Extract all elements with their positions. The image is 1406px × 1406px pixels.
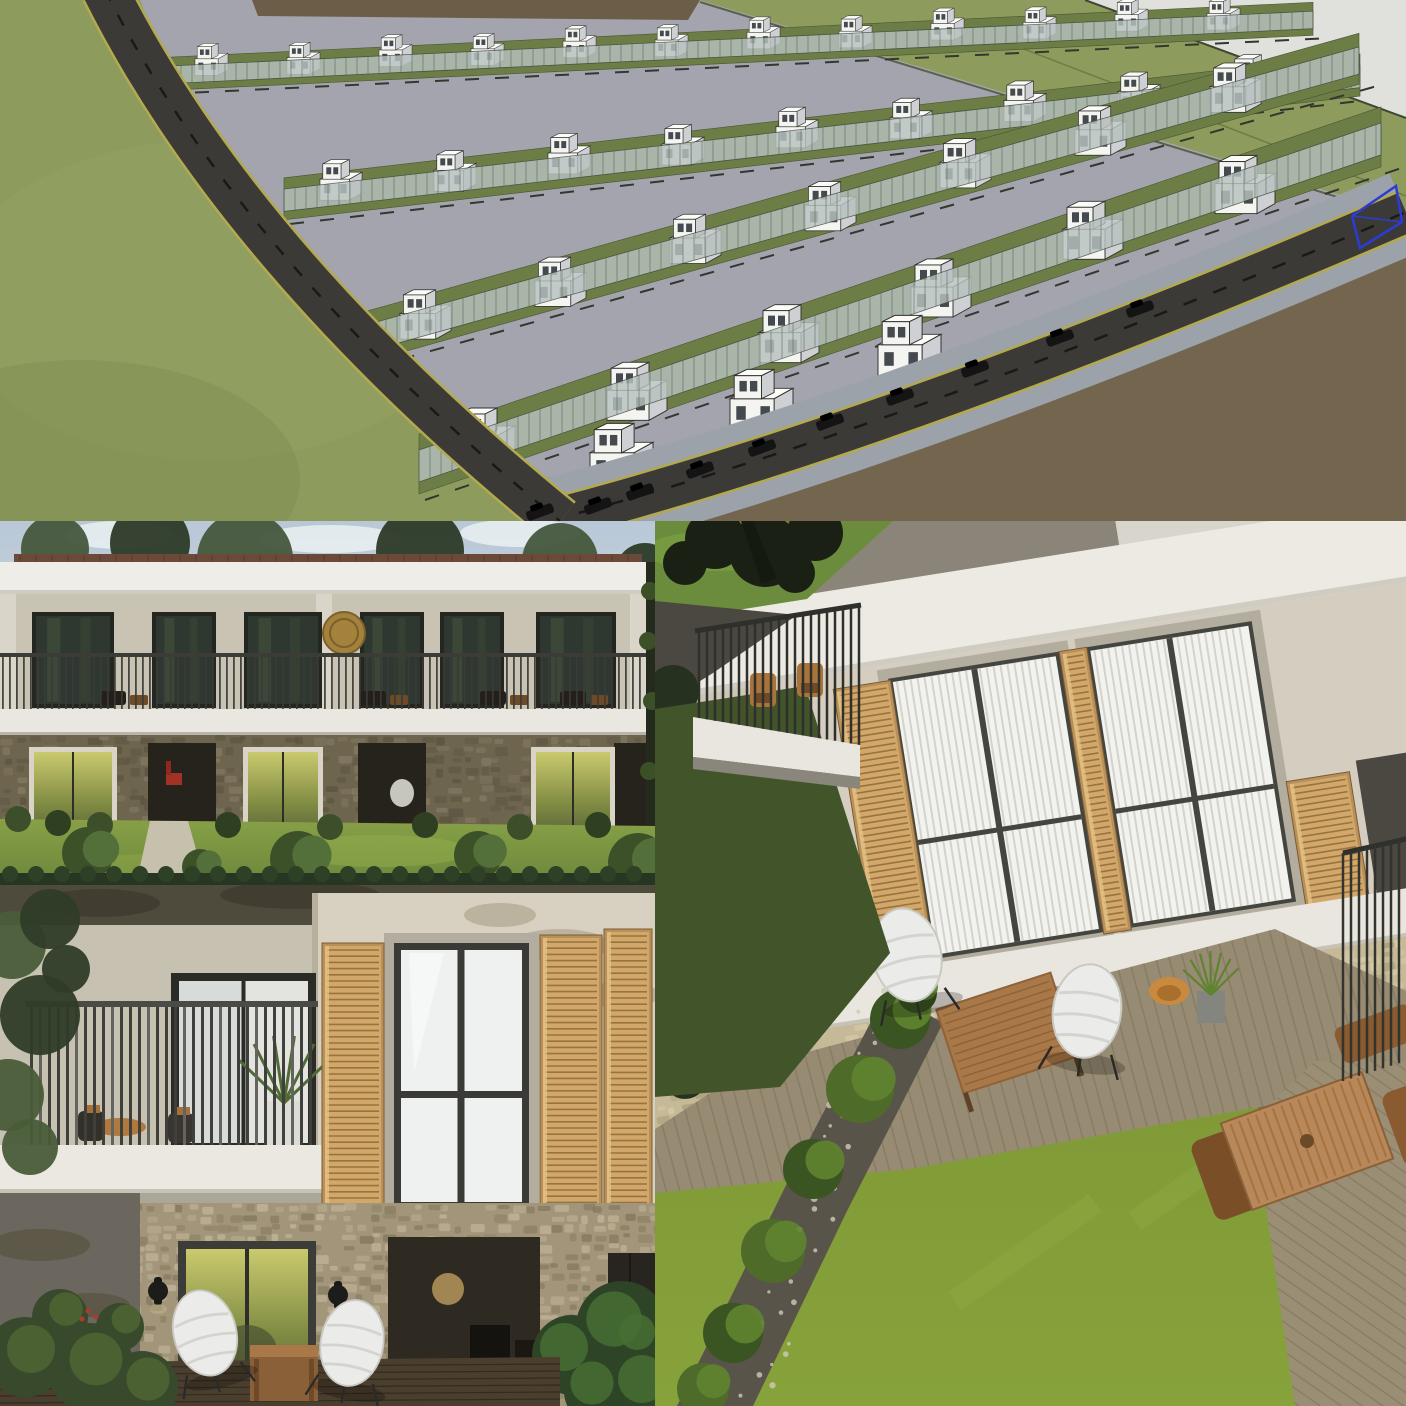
tree-silhouette — [663, 541, 707, 585]
balcony-slab — [0, 709, 655, 735]
townhouse-render-panel — [0, 521, 655, 885]
plant-pot — [1197, 991, 1225, 1023]
render-collage — [0, 0, 1406, 1406]
tree-silhouette — [775, 553, 815, 593]
garden-render-panel — [655, 521, 1406, 1406]
siteplan-render-panel — [0, 0, 1406, 521]
facade-render-panel — [0, 885, 655, 1406]
